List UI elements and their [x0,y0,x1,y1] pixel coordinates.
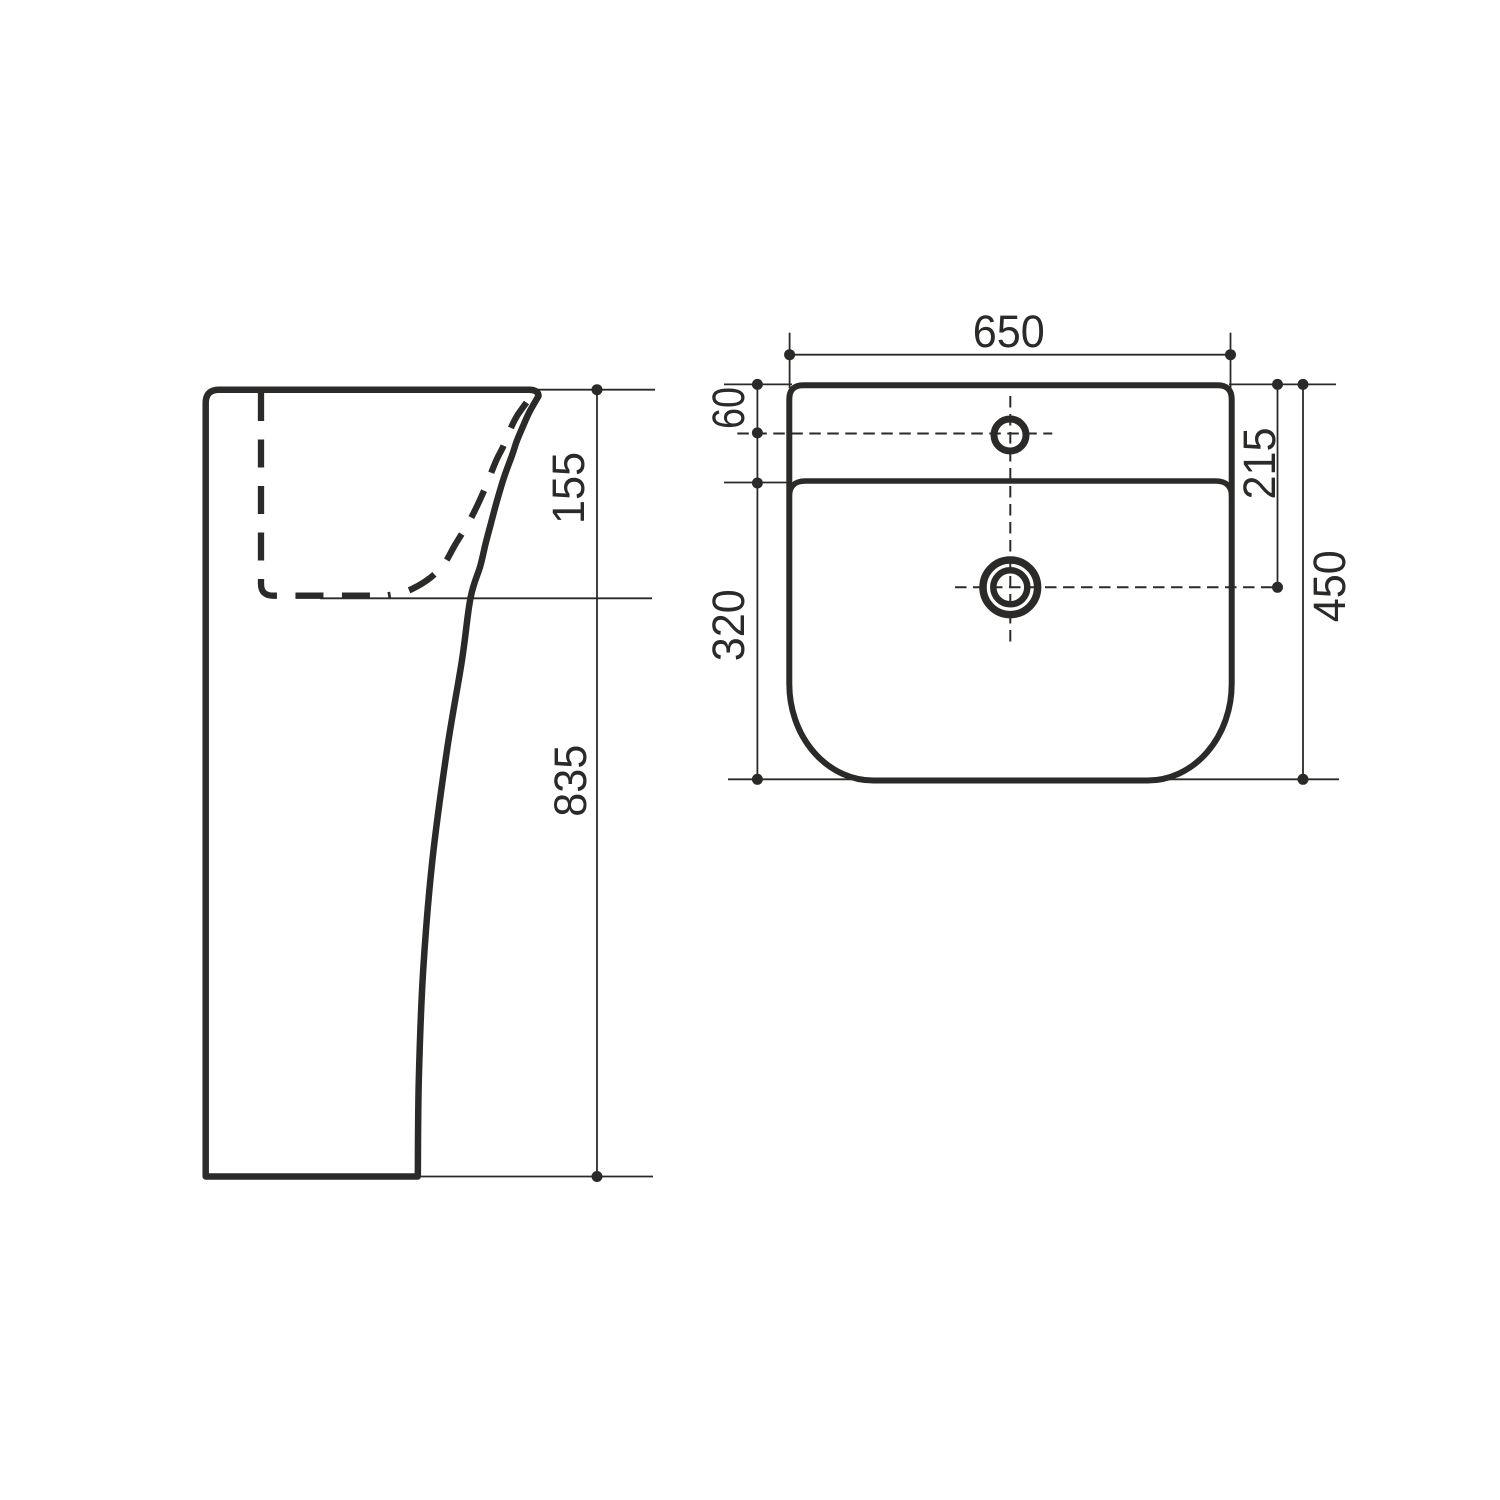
svg-text:450: 450 [1304,550,1355,622]
svg-text:60: 60 [703,387,754,429]
svg-text:835: 835 [545,745,596,817]
svg-text:155: 155 [543,452,594,524]
svg-text:650: 650 [973,306,1045,357]
svg-text:320: 320 [703,589,754,661]
svg-text:215: 215 [1234,428,1285,500]
